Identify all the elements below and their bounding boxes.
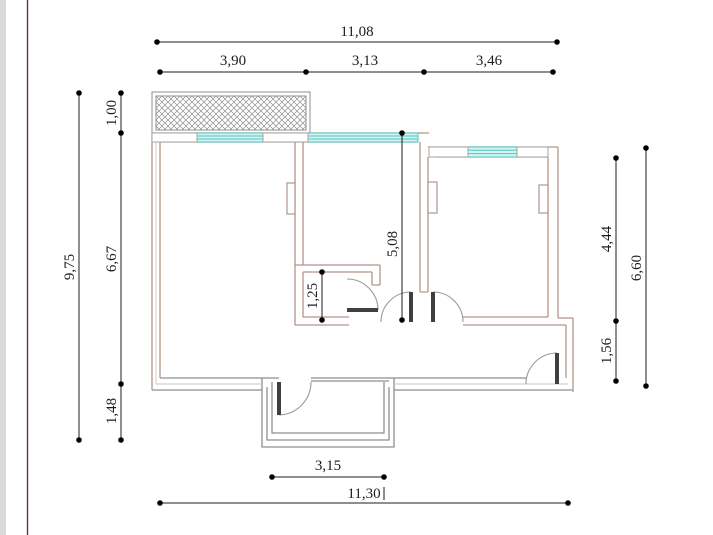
- dim-label-left-total: 9,75: [62, 254, 78, 280]
- window-living: [197, 133, 263, 142]
- dim-label-right-total: 6,60: [629, 255, 645, 281]
- dim-label-top-seg-1: 3,90: [220, 53, 246, 69]
- scanned-page: 11,08 3,90 3,13 3,46 9,75 1,00 6: [0, 0, 713, 535]
- door-leaf-closet: [347, 308, 378, 312]
- dim-label-left-seg-3: 1,48: [104, 398, 120, 424]
- dim-label-left-seg-1: 1,00: [104, 100, 120, 126]
- dim-label-porch-width: 3,15: [315, 458, 341, 474]
- dim-label-top-seg-3: 3,46: [476, 53, 503, 69]
- page-edge-strip: [0, 0, 6, 535]
- dim-label-left-seg-2: 6,67: [104, 245, 120, 272]
- window-bedroom: [468, 147, 517, 157]
- balcony-hatch-fill: [156, 96, 306, 130]
- door-leaf-entrance: [277, 382, 281, 415]
- door-leaf-bedroom: [431, 292, 435, 322]
- dim-label-top-seg-2: 3,13: [352, 53, 378, 69]
- dim-label-right-seg-1: 4,44: [599, 225, 615, 252]
- balcony-terrace: [152, 92, 310, 133]
- dim-label-right-seg-2: 1,56: [599, 337, 615, 364]
- door-leaf-rear: [555, 353, 559, 384]
- floor-plan-drawing: 11,08 3,90 3,13 3,46 9,75 1,00 6: [0, 0, 713, 535]
- dim-label-top-total: 11,08: [340, 24, 373, 40]
- dim-label-hall-depth: 5,08: [385, 231, 401, 257]
- door-leaf-hall: [409, 292, 413, 322]
- dim-label-closet-depth: 1,25: [305, 283, 321, 309]
- dim-label-bottom-total: 11,30: [347, 486, 380, 502]
